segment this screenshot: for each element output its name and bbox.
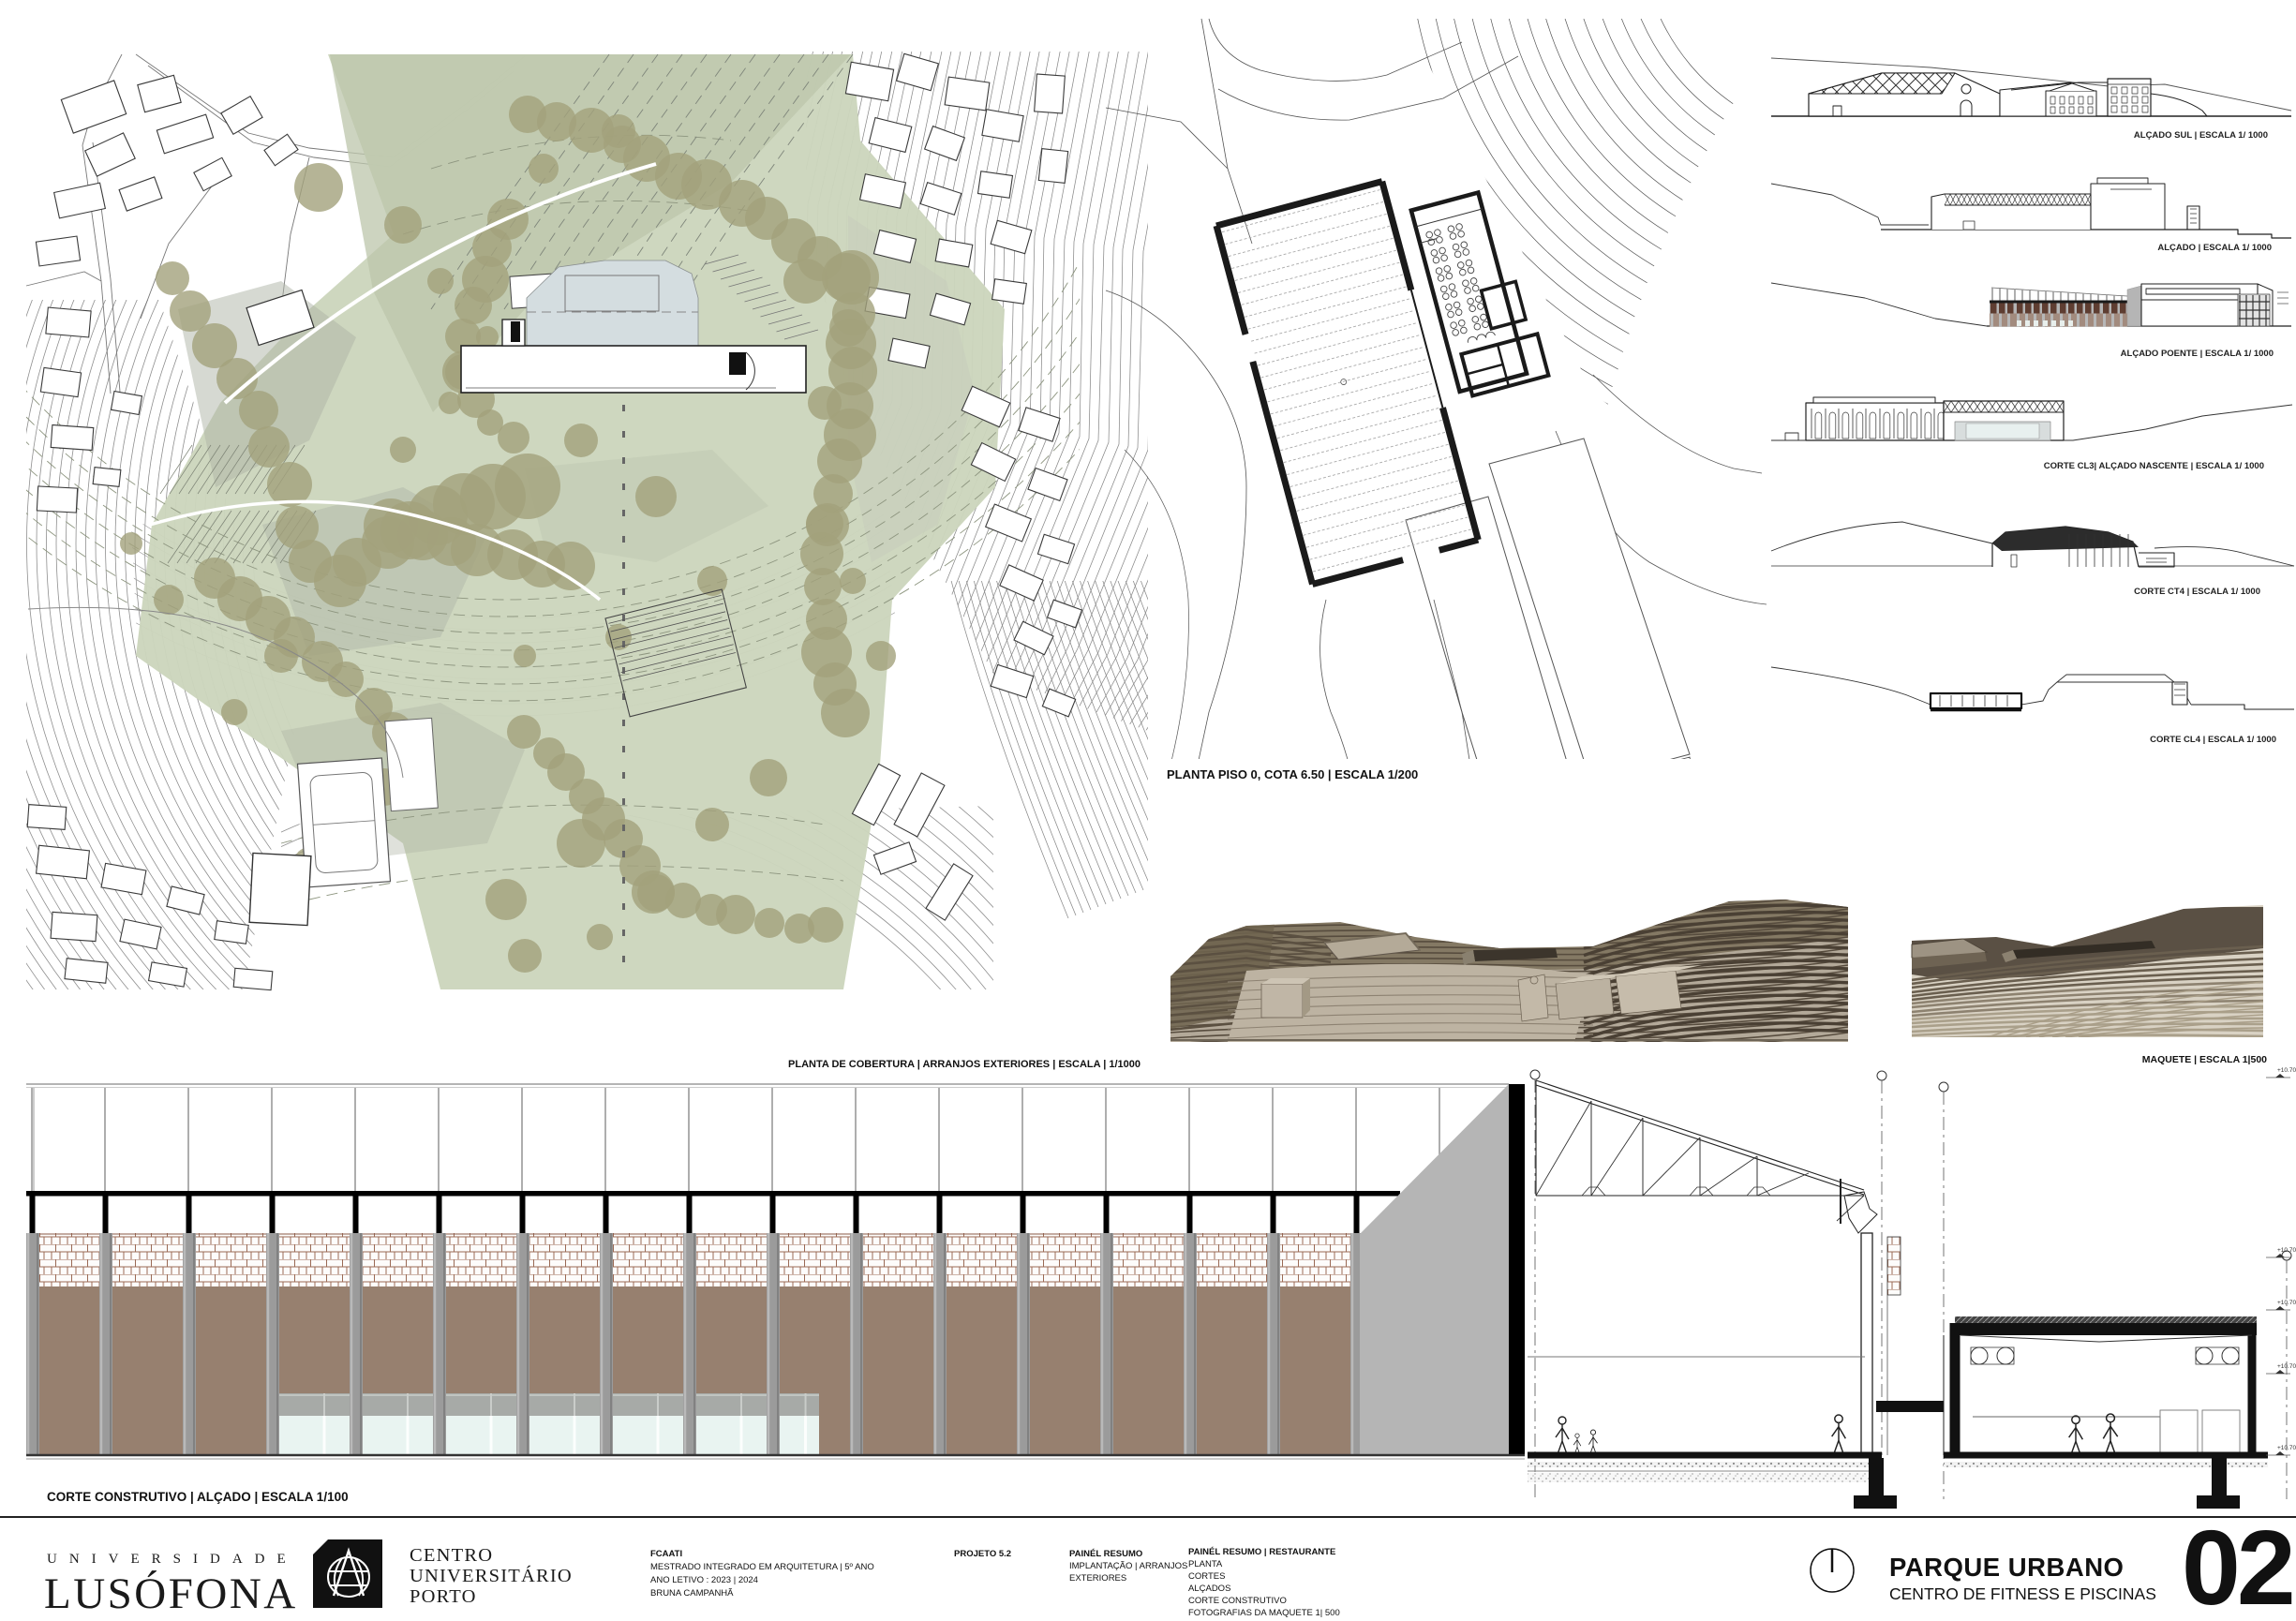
- svg-text:FOTOGRAFIAS DA MAQUETE 1| 500: FOTOGRAFIAS DA MAQUETE 1| 500: [1188, 1608, 1340, 1618]
- svg-text:UNIVERSIDADE: UNIVERSIDADE: [47, 1552, 298, 1567]
- svg-text:ALÇADOS: ALÇADOS: [1188, 1584, 1230, 1594]
- svg-text:CORTE CT4 | ESCALA 1/ 1000: CORTE CT4 | ESCALA 1/ 1000: [2134, 587, 2260, 597]
- svg-text:PAINÉL RESUMO | RESTAURANTE: PAINÉL RESUMO | RESTAURANTE: [1188, 1547, 1335, 1557]
- svg-text:CORTE CL3| ALÇADO NASCENTE | E: CORTE CL3| ALÇADO NASCENTE | ESCALA 1/ 1…: [2044, 461, 2264, 471]
- svg-text:PROJETO 5.2: PROJETO 5.2: [954, 1549, 1011, 1559]
- svg-text:02: 02: [2182, 1509, 2292, 1621]
- svg-text:EXTERIORES: EXTERIORES: [1069, 1573, 1126, 1584]
- svg-text:PLANTA: PLANTA: [1188, 1559, 1223, 1569]
- svg-text:PLANTA PISO 0, COTA 6.50 | ESC: PLANTA PISO 0, COTA 6.50 | ESCALA 1/200: [1167, 767, 1418, 781]
- svg-text:ALÇADO SUL | ESCALA 1/ 1000: ALÇADO SUL | ESCALA 1/ 1000: [2134, 130, 2268, 141]
- svg-text:CORTE CONSTRUTIVO | ALÇADO | E: CORTE CONSTRUTIVO | ALÇADO | ESCALA 1/10…: [47, 1490, 349, 1504]
- svg-text:+10.700: +10.700: [2277, 1300, 2296, 1306]
- svg-text:CORTE CONSTRUTIVO: CORTE CONSTRUTIVO: [1188, 1596, 1287, 1606]
- svg-text:CENTRO: CENTRO: [410, 1545, 493, 1566]
- svg-text:+10.700: +10.700: [2277, 1445, 2296, 1451]
- svg-text:CORTE CL4 | ESCALA 1/ 1000: CORTE CL4 | ESCALA 1/ 1000: [2150, 735, 2276, 745]
- svg-text:MAQUETE | ESCALA 1|500: MAQUETE | ESCALA 1|500: [2142, 1054, 2267, 1065]
- svg-text:ALÇADO POENTE | ESCALA 1/ 100: ALÇADO POENTE | ESCALA 1/ 1000: [2121, 349, 2274, 359]
- svg-text:PAINÉL RESUMO: PAINÉL RESUMO: [1069, 1549, 1142, 1559]
- svg-text:PORTO: PORTO: [410, 1586, 477, 1607]
- svg-text:MESTRADO INTEGRADO EM ARQUITET: MESTRADO INTEGRADO EM ARQUITETURA | 5º A…: [650, 1562, 874, 1572]
- svg-text:UNIVERSITÁRIO: UNIVERSITÁRIO: [410, 1565, 573, 1586]
- svg-text:+10.700: +10.700: [2277, 1363, 2296, 1370]
- svg-text:CORTES: CORTES: [1188, 1571, 1225, 1582]
- svg-text:ANO LETIVO : 2023 | 2024: ANO LETIVO : 2023 | 2024: [650, 1575, 758, 1585]
- svg-text:+10.700: +10.700: [2277, 1067, 2296, 1074]
- svg-text:CENTRO DE FITNESS E PISCINAS: CENTRO DE FITNESS E PISCINAS: [1889, 1584, 2156, 1603]
- svg-text:PARQUE URBANO: PARQUE URBANO: [1889, 1553, 2124, 1582]
- svg-text:PLANTA DE COBERTURA | ARRANJOS: PLANTA DE COBERTURA | ARRANJOS EXTERIORE…: [788, 1059, 1141, 1070]
- svg-text:IMPLANTAÇÃO | ARRANJOS: IMPLANTAÇÃO | ARRANJOS: [1069, 1561, 1187, 1571]
- svg-text:+10.700: +10.700: [2277, 1247, 2296, 1254]
- svg-text:BRUNA CAMPANHÃ: BRUNA CAMPANHÃ: [650, 1588, 734, 1599]
- svg-text:LUSÓFONA: LUSÓFONA: [44, 1569, 298, 1618]
- svg-text:FCAATI: FCAATI: [650, 1549, 682, 1559]
- svg-text:ALÇADO | ESCALA 1/ 1000: ALÇADO | ESCALA 1/ 1000: [2157, 243, 2272, 253]
